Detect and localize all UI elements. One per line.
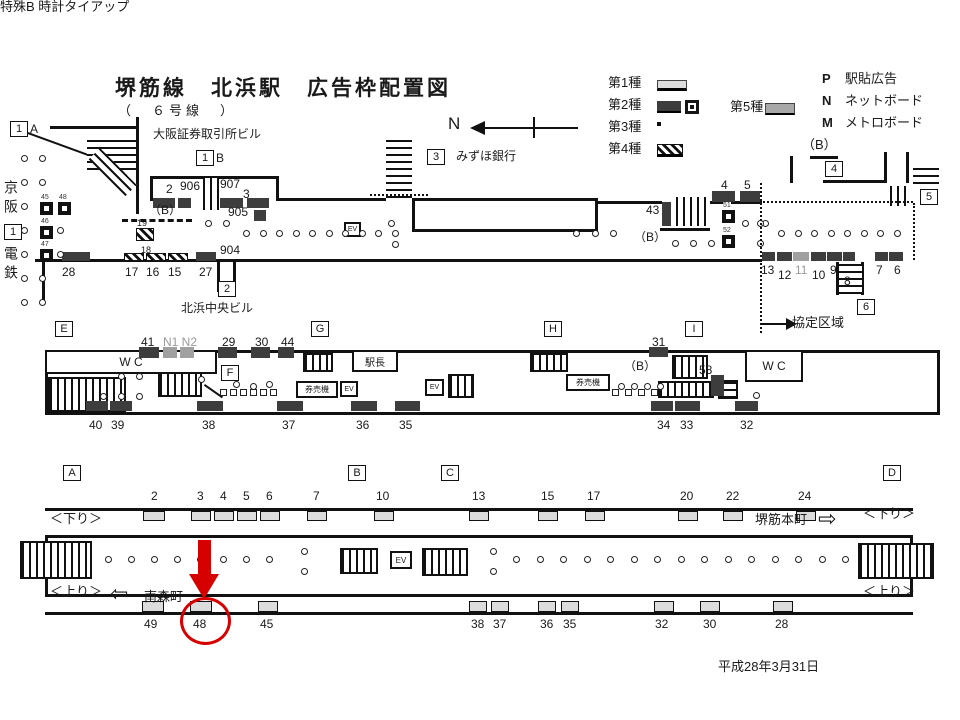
wall <box>810 156 838 159</box>
compass-arrowhead-icon <box>470 121 485 135</box>
position-dot <box>266 556 273 563</box>
text-label: 35 <box>563 618 576 630</box>
position-dot <box>701 556 708 563</box>
ad-slot <box>351 401 377 411</box>
text-label: 32 <box>655 618 668 630</box>
stairs <box>530 353 568 372</box>
room-EV: EV <box>425 379 444 396</box>
position-dot <box>205 220 212 227</box>
stairs <box>386 140 412 198</box>
dotted-boundary <box>913 203 916 260</box>
position-dot <box>618 383 625 390</box>
position-dot <box>811 230 818 237</box>
stairs <box>448 374 474 398</box>
text-label: 27 <box>199 266 212 278</box>
floor-outline <box>45 535 913 597</box>
text-label: 12 <box>778 269 791 281</box>
ad-slot <box>538 511 558 521</box>
poster-position-number: 48 <box>59 194 67 201</box>
boxed-label: H <box>544 321 562 337</box>
stairs <box>858 543 934 579</box>
position-dot <box>198 376 205 383</box>
text-label: 10 <box>376 490 389 502</box>
type4-swatch <box>657 144 683 157</box>
text-label: 13 <box>472 490 485 502</box>
text-label: 34 <box>657 419 670 431</box>
text-label: 41 <box>141 336 154 348</box>
text-label: 38 <box>471 618 484 630</box>
position-dot <box>243 230 250 237</box>
position-dot <box>753 392 760 399</box>
ad-slot <box>773 601 793 612</box>
ticket-gate <box>625 389 632 396</box>
stairs <box>658 381 714 398</box>
text-label: 33 <box>680 419 693 431</box>
text-label: 11 <box>795 264 807 276</box>
text-label: 40 <box>89 419 102 431</box>
text-label: 39 <box>111 419 124 431</box>
legend-type5-label: 第5種 <box>730 100 763 113</box>
position-dot <box>301 548 308 555</box>
ad-slot <box>700 601 720 612</box>
text-label: 43 <box>646 204 659 216</box>
ad-slot <box>740 191 760 202</box>
ad-slot <box>260 511 280 521</box>
text-label: 16 <box>146 266 159 278</box>
position-dot <box>392 241 399 248</box>
text-label: 32 <box>740 419 753 431</box>
position-dot <box>644 383 651 390</box>
boxed-label: 6 <box>857 299 875 315</box>
ad-slot <box>168 253 188 261</box>
position-dot <box>631 556 638 563</box>
position-dot <box>631 383 638 390</box>
ad-slot <box>811 252 826 261</box>
room-EV: EV <box>340 381 358 397</box>
red-arrow-head-icon <box>189 574 219 599</box>
railway-line-number-box: 1 <box>4 224 22 240</box>
ad-slot <box>62 252 90 261</box>
stairs <box>340 548 378 574</box>
position-dot <box>21 203 28 210</box>
exit-marker-3: 3 <box>427 149 445 165</box>
position-dot <box>21 155 28 162</box>
poster-position-number: 47 <box>41 241 49 248</box>
wall <box>136 117 139 214</box>
poster-position-number: 45 <box>41 194 49 201</box>
text-label: 44 <box>281 336 294 348</box>
position-dot <box>128 556 135 563</box>
red-arrow-shaft <box>198 540 211 576</box>
dotted-boundary <box>370 194 428 197</box>
wall <box>412 229 598 232</box>
poster-position-number: 52 <box>723 227 731 234</box>
poster-position-marker: 51 <box>722 210 735 223</box>
text-label: 7 <box>876 264 883 276</box>
ticket-gate <box>270 389 277 396</box>
ticket-gate <box>612 389 619 396</box>
text-label: （B） <box>624 360 656 372</box>
text-label: 南森町 <box>144 590 183 603</box>
text-label: 30 <box>255 336 268 348</box>
position-dot <box>610 230 617 237</box>
position-dot <box>657 383 664 390</box>
text-label: 15 <box>168 266 181 278</box>
type2-swatch-square <box>685 100 699 114</box>
stairs <box>203 178 219 210</box>
boxed-label: 3 <box>427 149 445 165</box>
boxed-label: 1 <box>10 121 28 137</box>
position-dot <box>266 381 273 388</box>
text-label: 4 <box>220 490 227 502</box>
text-label: 6 <box>894 264 901 276</box>
ad-slot <box>711 375 724 396</box>
poster-position-marker: 46 <box>40 226 53 239</box>
exit-marker-5: 5 <box>920 189 938 205</box>
exit-marker-G: G <box>311 321 329 337</box>
ad-slot <box>277 401 303 411</box>
position-dot <box>560 556 567 563</box>
text-label: ⇦ <box>110 585 128 603</box>
ad-slot <box>889 252 903 261</box>
boxed-label-suffix: A <box>30 121 38 137</box>
text-label: 904 <box>220 244 240 256</box>
position-dot <box>118 373 125 380</box>
text-label: （B） <box>149 204 181 216</box>
position-dot <box>490 548 497 555</box>
position-dot <box>233 381 240 388</box>
stairs <box>20 541 92 579</box>
legend-p-label: 駅貼広告 <box>845 72 897 85</box>
type5-swatch <box>765 103 795 115</box>
position-dot <box>21 299 28 306</box>
exit-marker-6: 6 <box>857 299 875 315</box>
position-dot <box>57 227 64 234</box>
ad-slot <box>678 511 698 521</box>
legend-p-code: P <box>822 72 831 85</box>
position-dot <box>573 230 580 237</box>
position-dot <box>57 251 64 258</box>
position-dot <box>136 393 143 400</box>
position-dot <box>678 556 685 563</box>
ad-slot <box>191 511 211 521</box>
position-dot <box>490 568 497 575</box>
stairs <box>422 548 468 576</box>
position-dot <box>174 556 181 563</box>
ad-slot <box>469 601 487 612</box>
poster-position-marker: 52 <box>722 235 735 248</box>
compass-line <box>478 127 578 129</box>
text-label: 大阪証券取引所ビル <box>153 128 261 140</box>
poster-position-number: 51 <box>723 202 731 209</box>
exit-marker-2: 2 <box>218 281 236 297</box>
text-label: 堺筋本町 <box>755 513 807 526</box>
position-dot <box>392 230 399 237</box>
text-label: ＜下り＞ <box>50 512 102 525</box>
text-label: ＜上り＞ <box>50 585 102 598</box>
text-label: 37 <box>493 618 506 630</box>
position-dot <box>672 240 679 247</box>
text-label: 30 <box>703 618 716 630</box>
position-dot <box>326 230 333 237</box>
ad-slot <box>136 228 154 241</box>
room-駅長: 駅長 <box>352 350 398 372</box>
wall <box>906 152 909 183</box>
wall <box>279 198 386 201</box>
text-label: 24 <box>798 490 811 502</box>
position-dot <box>243 556 250 563</box>
position-dot <box>842 556 849 563</box>
legend-type4-label: 第4種 <box>608 142 641 155</box>
ad-slot <box>110 401 132 411</box>
ad-slot <box>197 401 223 411</box>
text-label: 38 <box>202 419 215 431</box>
dotted-boundary <box>763 201 913 204</box>
boxed-label: F <box>221 365 239 381</box>
position-dot <box>39 299 46 306</box>
room-EV: EV <box>390 551 412 569</box>
ad-slot <box>307 511 327 521</box>
ad-slot <box>735 401 758 411</box>
position-dot <box>359 230 366 237</box>
ad-slot <box>395 401 420 411</box>
ad-slot <box>374 511 394 521</box>
legend-type3-label: 第3種 <box>608 120 641 133</box>
type1-swatch <box>657 80 687 91</box>
wall <box>45 612 913 615</box>
stairs <box>913 168 939 188</box>
text-label: 36 <box>540 618 553 630</box>
stairs <box>158 372 202 397</box>
ad-slot <box>875 252 888 261</box>
text-label: 36 <box>356 419 369 431</box>
text-label: 18 <box>141 246 151 255</box>
ad-slot <box>777 252 792 261</box>
text-label: 905 <box>228 206 248 218</box>
text-label: 17 <box>587 490 600 502</box>
ticket-gate <box>638 389 645 396</box>
position-dot <box>301 568 308 575</box>
text-label: 3 <box>243 188 250 200</box>
ad-slot <box>827 252 842 261</box>
position-dot <box>584 556 591 563</box>
position-dot <box>293 230 300 237</box>
position-dot <box>795 230 802 237</box>
text-label: 9 <box>830 264 837 276</box>
wall <box>823 180 887 183</box>
ad-slot <box>651 401 673 411</box>
boxed-label: 4 <box>825 161 843 177</box>
position-dot <box>861 230 868 237</box>
boxed-label: C <box>441 465 459 481</box>
ad-slot <box>662 202 671 226</box>
exit-marker-C: C <box>441 465 459 481</box>
compass-tick <box>533 117 535 138</box>
text-label: 31 <box>652 336 665 348</box>
legend-n-label: ネットボード <box>845 94 923 107</box>
ad-slot <box>258 601 278 612</box>
legend-type2-label: 第2種 <box>608 98 641 111</box>
text-label: 20 <box>680 490 693 502</box>
position-dot <box>21 275 28 282</box>
poster-position-marker: 47 <box>40 249 53 262</box>
position-dot <box>778 230 785 237</box>
wall <box>50 126 138 129</box>
position-dot <box>388 220 395 227</box>
text-label: 6 <box>266 490 273 502</box>
position-dot <box>309 230 316 237</box>
text-label: 5 <box>243 490 250 502</box>
text-label: 4 <box>721 179 728 191</box>
position-dot <box>592 230 599 237</box>
document-date: 平成28年3月31日 <box>718 660 819 673</box>
ad-slot <box>843 252 855 261</box>
position-dot <box>537 556 544 563</box>
exit-marker-I: I <box>685 321 703 337</box>
text-label: 28 <box>62 266 75 278</box>
position-dot <box>118 393 125 400</box>
exit-marker-1B: 1B <box>196 150 224 166</box>
room-券売機: 券売機 <box>296 381 338 398</box>
text-label: 協定区域 <box>792 316 844 329</box>
room-WC: W C <box>745 350 803 382</box>
text-label: ＜上り＞ <box>863 585 915 598</box>
text-label: 2 <box>166 183 173 195</box>
stairs <box>676 197 708 226</box>
poster-position-marker: 45 <box>40 202 53 215</box>
legend-b-code: （B） <box>802 138 837 151</box>
position-dot <box>39 155 46 162</box>
boxed-label: B <box>348 465 366 481</box>
text-label: 3 <box>197 490 204 502</box>
exit-marker-F: F <box>221 365 239 381</box>
poster-position-number: 46 <box>41 218 49 225</box>
boxed-label: D <box>883 465 901 481</box>
position-dot <box>39 179 46 186</box>
legend-b-label: 特殊B 時計タイアップ <box>0 0 129 13</box>
ad-slot <box>762 252 775 261</box>
ad-slot <box>86 401 108 411</box>
arrow-line <box>762 323 786 325</box>
position-dot <box>39 275 46 282</box>
text-label: 17 <box>125 266 138 278</box>
boxed-label: A <box>63 465 81 481</box>
wall <box>412 198 598 201</box>
ticket-gate <box>250 389 257 396</box>
text-label: 37 <box>282 419 295 431</box>
position-dot <box>819 556 826 563</box>
wall <box>660 228 710 231</box>
boxed-label: G <box>311 321 329 337</box>
ad-slot <box>723 511 743 521</box>
position-dot <box>136 373 143 380</box>
ticket-gate <box>260 389 267 396</box>
legend-m-code: M <box>822 116 833 129</box>
position-dot <box>21 227 28 234</box>
exit-marker-A: A <box>63 465 81 481</box>
type3-swatch <box>657 122 661 126</box>
position-dot <box>100 393 107 400</box>
ad-slot <box>585 511 605 521</box>
position-dot <box>708 240 715 247</box>
position-dot <box>105 556 112 563</box>
station-ad-placement-map: 堺筋線 北浜駅 広告枠配置図 （ ６号線 ） 第1種 第2種 第3種 第4種 第… <box>0 0 960 720</box>
text-label: 8 <box>844 275 851 287</box>
text-label: 49 <box>144 618 157 630</box>
text-label: みずほ銀行 <box>456 150 516 162</box>
position-dot <box>375 230 382 237</box>
text-label: 29 <box>222 336 235 348</box>
compass-n-label: N <box>448 115 460 132</box>
railway-label-top: 京阪 <box>4 180 18 218</box>
type2-swatch <box>657 101 681 113</box>
stairs <box>303 353 333 372</box>
position-dot <box>220 556 227 563</box>
position-dot <box>690 240 697 247</box>
text-label: （B） <box>634 231 666 243</box>
boxed-label: 2 <box>218 281 236 297</box>
position-dot <box>654 556 661 563</box>
exit-marker-1A: 1A <box>10 121 38 137</box>
exit-marker-E: E <box>55 321 73 337</box>
text-label: ⇨ <box>818 510 836 528</box>
boxed-label: 1 <box>196 150 214 166</box>
wall <box>884 152 887 183</box>
text-label: 45 <box>260 618 273 630</box>
text-label: 7 <box>313 490 320 502</box>
ad-slot <box>196 252 216 261</box>
ticket-gate <box>651 389 658 396</box>
position-dot <box>844 230 851 237</box>
position-dot <box>513 556 520 563</box>
text-label: N1 N2 <box>163 336 197 348</box>
dashed-line <box>122 219 192 222</box>
ad-slot <box>237 511 257 521</box>
text-label: 北浜中央ビル <box>181 302 253 314</box>
text-label: 58 <box>699 364 712 376</box>
position-dot <box>260 230 267 237</box>
ad-slot <box>793 252 809 261</box>
room-券売機: 券売機 <box>566 374 610 391</box>
wall <box>790 156 793 183</box>
position-dot <box>607 556 614 563</box>
dotted-boundary <box>760 183 763 333</box>
ad-slot <box>469 511 489 521</box>
position-dot <box>748 556 755 563</box>
boxed-label: 5 <box>920 189 938 205</box>
position-dot <box>21 251 28 258</box>
ad-slot <box>214 511 234 521</box>
text-label: ＜下り＞ <box>863 507 915 520</box>
exit-marker-H: H <box>544 321 562 337</box>
ad-slot <box>654 601 674 612</box>
legend-n-code: N <box>822 94 831 107</box>
exit-marker-4: 4 <box>825 161 843 177</box>
boxed-label: I <box>685 321 703 337</box>
legend-m-label: メトロボード <box>845 116 923 129</box>
position-dot <box>772 556 779 563</box>
ad-slot <box>247 198 269 208</box>
position-dot <box>276 230 283 237</box>
ticket-gate <box>240 389 247 396</box>
text-label: 22 <box>726 490 739 502</box>
text-label: 15 <box>541 490 554 502</box>
ad-slot <box>538 601 556 612</box>
exit-marker-D: D <box>883 465 901 481</box>
text-label: 906 <box>180 180 200 192</box>
ad-slot <box>491 601 509 612</box>
ad-slot <box>561 601 579 612</box>
